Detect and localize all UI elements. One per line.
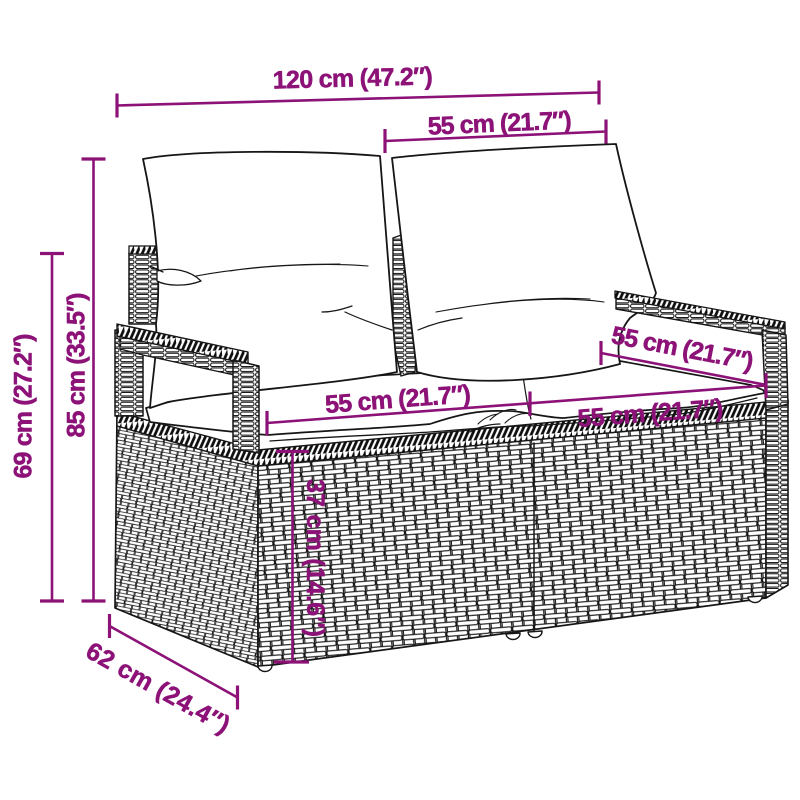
svg-text:85 cm (33.5″): 85 cm (33.5″) [63,293,91,438]
svg-text:37 cm (14.6″): 37 cm (14.6″) [301,479,329,637]
svg-text:69 cm (27.2″): 69 cm (27.2″) [10,334,38,479]
svg-text:120 cm (47.2″): 120 cm (47.2″) [272,62,433,94]
